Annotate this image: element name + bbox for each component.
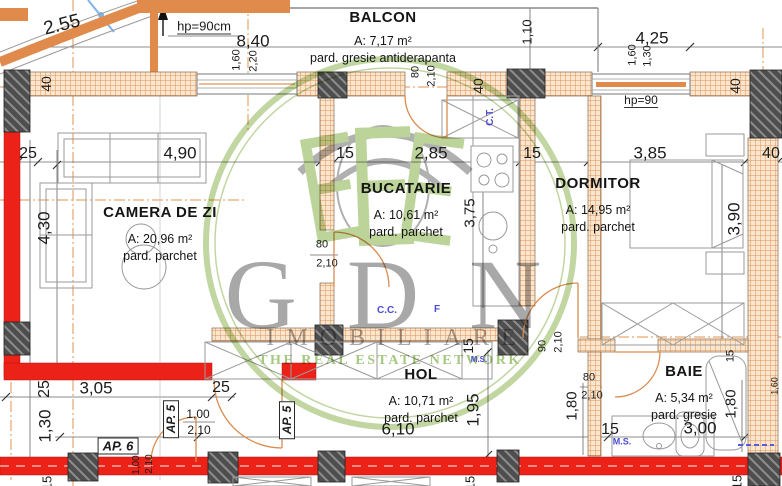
dimension-label: 1,00 — [186, 408, 209, 420]
annotation-label: M.S. — [471, 356, 487, 364]
apartment-label: AP. 5 — [163, 400, 179, 438]
dimension-label: 1,30 — [643, 45, 654, 66]
dimension-label: 1,60 — [232, 49, 243, 70]
dimension-label: 1,30 — [37, 409, 54, 442]
apartment-label: AP. 5 — [279, 401, 295, 439]
dimension-label: 2.55 — [42, 11, 82, 38]
dimension-label: 40 — [39, 76, 53, 92]
dimension-label: 2,10 — [581, 391, 602, 402]
apartment-label: AP. 6 — [98, 438, 139, 455]
dimension-label: 4,25 — [635, 30, 668, 47]
dimension-label: 4,30 — [36, 211, 53, 244]
dimension-label: 1,60 — [771, 377, 780, 395]
floorplan: GDN IMOBILIARE THE REAL ESTATE NETWORK B… — [0, 0, 782, 486]
dimension-labels-layer: 2.55hp=90cm8,401,104,251,602,201,601,308… — [0, 0, 782, 486]
dimension-label: 2,10 — [187, 424, 210, 436]
dimension-label: 2,85 — [414, 145, 447, 162]
dimension-label: 25 — [37, 380, 53, 398]
dimension-label: 2,20 — [249, 50, 260, 71]
dimension-label: 90 — [538, 340, 549, 352]
dimension-label: 2,10 — [145, 454, 155, 473]
annotation-label: M.S. — [613, 438, 632, 447]
dimension-label: 3,90 — [726, 202, 743, 235]
dimension-label: 15 — [731, 475, 744, 486]
dimension-label: 1,95 — [465, 393, 482, 426]
dimension-label: 1,80 — [565, 391, 580, 420]
dimension-label: 40 — [471, 78, 485, 94]
dimension-label: 40 — [728, 78, 742, 94]
dimension-label: 80 — [316, 240, 328, 251]
dimension-label: 3,75 — [463, 198, 478, 227]
dimension-label: 25 — [212, 380, 230, 396]
dimension-label: 3,00 — [683, 420, 716, 437]
dimension-label: 8,40 — [236, 33, 269, 50]
dimension-label: 4,90 — [163, 145, 196, 162]
dimension-label: 1,60 — [628, 44, 639, 65]
dimension-label: 15 — [461, 338, 475, 354]
dimension-label: 3,05 — [79, 380, 112, 397]
dimension-label: 1,80 — [724, 389, 739, 418]
annotation-label: F — [434, 305, 440, 315]
dimension-label: 80 — [583, 373, 595, 384]
dimension-label: 25 — [19, 146, 37, 162]
dimension-label: 15 — [336, 146, 354, 162]
dimension-label: 2,10 — [427, 65, 438, 86]
dimension-label: 40 — [762, 146, 780, 162]
dimension-label: 15 — [726, 350, 737, 362]
dimension-label: 15 — [523, 146, 541, 162]
dimension-label: hp=90cm — [177, 20, 231, 35]
dimension-label: 1,10 — [521, 19, 534, 44]
dimension-label: 3,85 — [633, 145, 666, 162]
dimension-label: 2,10 — [554, 331, 565, 352]
dimension-label: 1,00 — [132, 455, 142, 474]
dimension-label: hp=90 — [624, 94, 658, 108]
dimension-label: 6,10 — [381, 421, 414, 438]
dimension-label: 80 — [411, 66, 422, 78]
annotation-label: C.T. — [486, 108, 496, 126]
annotation-label: C.C. — [377, 306, 397, 316]
dimension-label: 2,10 — [316, 259, 337, 270]
dimension-label: 15 — [464, 476, 477, 486]
dimension-label: 15 — [41, 476, 54, 486]
